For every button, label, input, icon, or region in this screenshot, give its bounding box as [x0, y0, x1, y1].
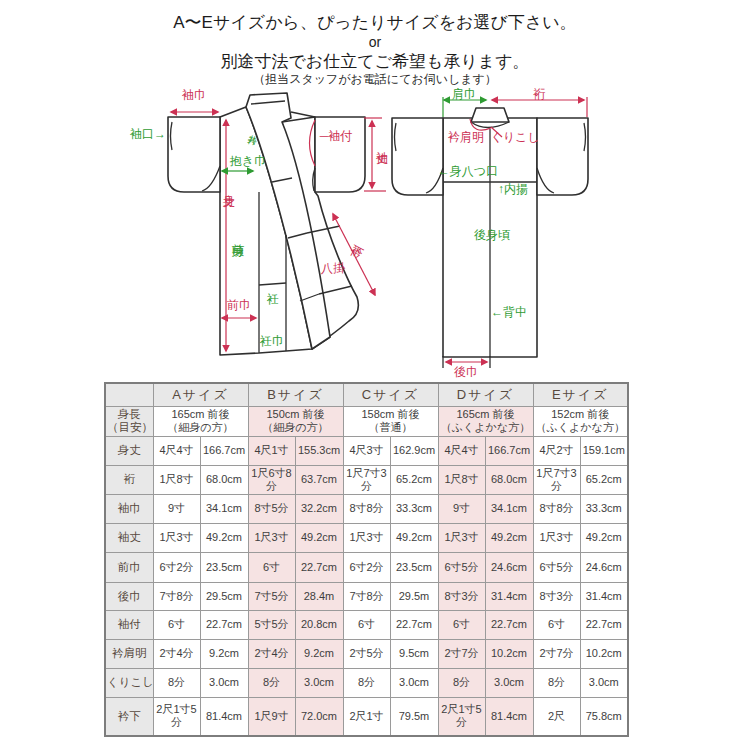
cell-cm: 81.4cm — [485, 697, 533, 736]
cell-traditional: 1尺7寸3分 — [343, 465, 390, 494]
size-table: AサイズBサイズCサイズDサイズEサイズ身長（目安）165cm 前後（細身の方）… — [104, 382, 629, 737]
row-label: 袖巾 — [105, 494, 153, 523]
row-label: 後巾 — [105, 582, 153, 610]
cell-cm: 20.8cm — [295, 610, 343, 639]
cell-cm: 63.7cm — [295, 465, 343, 494]
cell-cm: 49.2cm — [200, 523, 248, 552]
cell-cm: 49.2cm — [485, 523, 533, 552]
corner-cell — [105, 383, 153, 406]
miyatsuguchi-label: ←身八つ口 — [438, 165, 498, 178]
size-table-wrap: AサイズBサイズCサイズDサイズEサイズ身長（目安）165cm 前後（細身の方）… — [104, 382, 629, 737]
cell-cm: 68.0cm — [485, 465, 533, 494]
cell-traditional: 6寸 — [438, 610, 485, 639]
size-header-C: Cサイズ — [343, 383, 438, 406]
erikataaki-label: 衿肩明 — [448, 131, 484, 144]
size-header-D: Dサイズ — [438, 383, 533, 406]
row-label-height: 身長（目安） — [105, 406, 153, 436]
height-row: 身長（目安）165cm 前後（細身の方）150cm 前後（細身の方）158cm … — [105, 406, 628, 436]
cell-traditional: 1尺3寸 — [438, 523, 485, 552]
cell-cm: 33.3cm — [580, 494, 628, 523]
cell-traditional: 4尺3寸 — [343, 436, 390, 465]
cell-traditional: 5寸5分 — [248, 610, 295, 639]
cell-cm: 32.2cm — [295, 494, 343, 523]
cell-cm: 10.2cm — [485, 639, 533, 668]
cell-traditional: 2寸5分 — [343, 639, 390, 668]
cell-traditional: 1尺9寸 — [248, 697, 295, 736]
table-row: 裄1尺8寸68.0cm1尺6寸8分63.7cm1尺7寸3分65.2cm1尺8寸6… — [105, 465, 628, 494]
sodetsuke-label: ─袖付 — [320, 130, 353, 143]
table-row: 衿下2尺1寸5分81.4cm1尺9寸72.0cm2尺1寸79.5m2尺1寸5分8… — [105, 697, 628, 736]
kimono-diagram: 袖巾袖口→抱き巾身丈共衿─袖付袖丈前身頃前巾衽衽巾八掛衿下肩巾裄衿肩明くりこし←… — [0, 85, 750, 382]
cell-traditional: 2尺1寸5分 — [438, 697, 485, 736]
cell-traditional: 1尺3寸 — [153, 523, 200, 552]
row-label: 衿肩明 — [105, 639, 153, 668]
header-line-3: 別途寸法でお仕立てご希望も承ります。 — [0, 51, 750, 72]
sodeguchi-label: 袖口→ — [130, 128, 166, 141]
cell-cm: 9.2cm — [200, 639, 248, 668]
cell-cm: 166.7cm — [485, 436, 533, 465]
cell-cm: 162.9cm — [390, 436, 438, 465]
cell-cm: 31.4cm — [580, 582, 628, 610]
hakkake-label: 八掛 — [321, 262, 345, 275]
cell-cm: 31.4cm — [485, 582, 533, 610]
cell-cm: 159.1cm — [580, 436, 628, 465]
height-cell-B: 150cm 前後（細身の方） — [248, 406, 343, 436]
cell-traditional: 2寸7分 — [533, 639, 580, 668]
cell-cm: 10.2cm — [580, 639, 628, 668]
cell-traditional: 6寸2分 — [343, 552, 390, 582]
cell-traditional: 6寸 — [248, 552, 295, 582]
maehaba-label: 前巾 — [227, 299, 251, 312]
cell-traditional: 2寸7分 — [438, 639, 485, 668]
cell-cm: 49.2cm — [390, 523, 438, 552]
table-row: 袖付6寸22.7cm5寸5分20.8cm6寸22.7cm6寸22.7cm6寸22… — [105, 610, 628, 639]
cell-cm: 3.0cm — [390, 668, 438, 697]
cell-traditional: 8寸8分 — [343, 494, 390, 523]
kurikoshi-label: くりこし — [490, 131, 539, 144]
table-row: 後巾7寸8分29.5cm7寸5分28.4m7寸8分29.5m8寸3分31.4cm… — [105, 582, 628, 610]
table-row: 身丈4尺4寸166.7cm4尺1寸155.3cm4尺3寸162.9cm4尺4寸1… — [105, 436, 628, 465]
cell-traditional: 1尺7寸3分 — [533, 465, 580, 494]
row-label: 袖付 — [105, 610, 153, 639]
row-label: くりこし — [105, 668, 153, 697]
cell-traditional: 6寸5分 — [438, 552, 485, 582]
cell-traditional: 8分 — [533, 668, 580, 697]
cell-cm: 155.3cm — [295, 436, 343, 465]
size-table-body: AサイズBサイズCサイズDサイズEサイズ身長（目安）165cm 前後（細身の方）… — [105, 383, 628, 736]
cell-traditional: 8寸3分 — [533, 582, 580, 610]
cell-cm: 75.8cm — [580, 697, 628, 736]
size-header-E: Eサイズ — [533, 383, 628, 406]
cell-cm: 34.1cm — [485, 494, 533, 523]
cell-cm: 65.2cm — [390, 465, 438, 494]
cell-cm: 166.7cm — [200, 436, 248, 465]
okumi-label: 衽 — [267, 293, 279, 306]
cell-cm: 65.2cm — [580, 465, 628, 494]
cell-traditional: 7寸8分 — [153, 582, 200, 610]
height-cell-C: 158cm 前後（普通） — [343, 406, 438, 436]
cell-traditional: 4尺2寸 — [533, 436, 580, 465]
cell-traditional: 6寸 — [533, 610, 580, 639]
cell-traditional: 1尺8寸 — [153, 465, 200, 494]
table-row: くりこし8分3.0cm8分3.0cm8分3.0cm8分3.0cm8分3.0cm — [105, 668, 628, 697]
cell-traditional: 9寸 — [438, 494, 485, 523]
sodetake-label: 袖丈 — [375, 142, 388, 144]
cell-cm: 24.6cm — [580, 552, 628, 582]
row-label: 前巾 — [105, 552, 153, 582]
cell-traditional: 6寸2分 — [153, 552, 200, 582]
cell-traditional: 7寸8分 — [343, 582, 390, 610]
yuki-label: 裄 — [533, 88, 545, 101]
cell-traditional: 4尺1寸 — [248, 436, 295, 465]
table-row: 前巾6寸2分23.5cm6寸22.7cm6寸2分23.5cm6寸5分24.6cm… — [105, 552, 628, 582]
cell-cm: 3.0cm — [485, 668, 533, 697]
cell-traditional: 8分 — [153, 668, 200, 697]
okumihaba-label: 衽巾 — [260, 335, 284, 348]
kimono-size-page: { "page": { "title_line1": "A〜Eサイズから、ぴった… — [0, 0, 750, 750]
cell-cm: 34.1cm — [200, 494, 248, 523]
cell-traditional: 8寸5分 — [248, 494, 295, 523]
size-header-B: Bサイズ — [248, 383, 343, 406]
cell-cm: 72.0cm — [295, 697, 343, 736]
cell-cm: 3.0cm — [200, 668, 248, 697]
cell-traditional: 6寸 — [153, 610, 200, 639]
cell-cm: 3.0cm — [295, 668, 343, 697]
cell-cm: 23.5cm — [390, 552, 438, 582]
height-cell-D: 165cm 前後（ふくよかな方） — [438, 406, 533, 436]
row-label: 衿下 — [105, 697, 153, 736]
cell-traditional: 8分 — [438, 668, 485, 697]
cell-traditional: 1尺3寸 — [533, 523, 580, 552]
cell-traditional: 1尺3寸 — [248, 523, 295, 552]
ushiromigoro-label: 後身頃 — [474, 229, 510, 242]
cell-cm: 24.6cm — [485, 552, 533, 582]
cell-cm: 29.5m — [390, 582, 438, 610]
uchiage-label: ↑内揚 — [498, 183, 528, 196]
cell-traditional: 1尺8寸 — [438, 465, 485, 494]
dakihaba-label: 抱き巾 — [230, 155, 266, 168]
cell-traditional: 7寸5分 — [248, 582, 295, 610]
cell-traditional: 8分 — [248, 668, 295, 697]
cell-cm: 68.0cm — [200, 465, 248, 494]
row-label: 身丈 — [105, 436, 153, 465]
cell-cm: 22.7cm — [580, 610, 628, 639]
kimono-diagram-canvas — [0, 85, 750, 382]
cell-cm: 81.4cm — [200, 697, 248, 736]
table-row: 袖丈1尺3寸49.2cm1尺3寸49.2cm1尺3寸49.2cm1尺3寸49.2… — [105, 523, 628, 552]
cell-traditional: 2尺1寸 — [343, 697, 390, 736]
maemigoro-label: 前身頃 — [231, 234, 244, 237]
cell-traditional: 4尺4寸 — [153, 436, 200, 465]
cell-cm: 3.0cm — [580, 668, 628, 697]
cell-cm: 22.7cm — [295, 552, 343, 582]
table-header-row: AサイズBサイズCサイズDサイズEサイズ — [105, 383, 628, 406]
ushirohaba-label: 後巾 — [454, 366, 478, 379]
cell-cm: 29.5cm — [200, 582, 248, 610]
sodehaba-label: 袖巾 — [182, 89, 206, 102]
table-row: 衿肩明2寸4分9.2cm2寸4分9.2cm2寸5分9.5cm2寸7分10.2cm… — [105, 639, 628, 668]
row-label: 裄 — [105, 465, 153, 494]
cell-traditional: 2寸4分 — [248, 639, 295, 668]
header-line-2: or — [0, 34, 750, 51]
cell-cm: 49.2cm — [295, 523, 343, 552]
cell-cm: 22.7cm — [200, 610, 248, 639]
cell-cm: 33.3cm — [390, 494, 438, 523]
cell-traditional: 8分 — [343, 668, 390, 697]
cell-cm: 23.5cm — [200, 552, 248, 582]
cell-cm: 22.7cm — [485, 610, 533, 639]
cell-traditional: 1尺6寸8分 — [248, 465, 295, 494]
cell-traditional: 4尺4寸 — [438, 436, 485, 465]
cell-cm: 22.7cm — [390, 610, 438, 639]
katahaba-label: 肩巾 — [452, 88, 476, 101]
cell-traditional: 6寸5分 — [533, 552, 580, 582]
cell-traditional: 2尺1寸5分 — [153, 697, 200, 736]
cell-cm: 49.2cm — [580, 523, 628, 552]
cell-traditional: 2尺 — [533, 697, 580, 736]
cell-traditional: 9寸 — [153, 494, 200, 523]
header-line-1: A〜Eサイズから、ぴったりサイズをお選び下さい。 — [0, 12, 750, 34]
cell-traditional: 6寸 — [343, 610, 390, 639]
cell-cm: 9.5cm — [390, 639, 438, 668]
cell-traditional: 1尺3寸 — [343, 523, 390, 552]
table-row: 袖巾9寸34.1cm8寸5分32.2cm8寸8分33.3cm9寸34.1cm8寸… — [105, 494, 628, 523]
mitake-label: 身丈 — [222, 185, 235, 187]
senaka-label: ←背中 — [491, 306, 527, 319]
cell-cm: 28.4m — [295, 582, 343, 610]
cell-traditional: 8寸8分 — [533, 494, 580, 523]
cell-traditional: 8寸3分 — [438, 582, 485, 610]
cell-cm: 9.2cm — [295, 639, 343, 668]
page-header: A〜Eサイズから、ぴったりサイズをお選び下さい。 or 別途寸法でお仕立てご希望… — [0, 12, 750, 87]
height-cell-E: 152cm 前後（ふくよかな方） — [533, 406, 628, 436]
cell-traditional: 2寸4分 — [153, 639, 200, 668]
size-header-A: Aサイズ — [153, 383, 248, 406]
cell-cm: 79.5m — [390, 697, 438, 736]
height-cell-A: 165cm 前後（細身の方） — [153, 406, 248, 436]
row-label: 袖丈 — [105, 523, 153, 552]
